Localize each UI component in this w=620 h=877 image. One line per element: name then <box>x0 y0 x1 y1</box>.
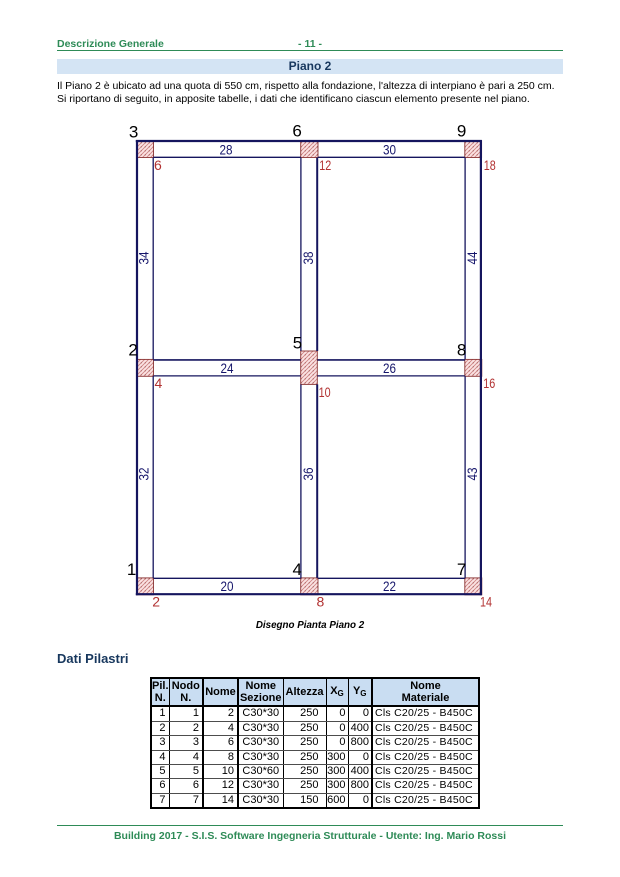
svg-text:38: 38 <box>300 251 316 264</box>
svg-text:18: 18 <box>484 157 496 173</box>
svg-text:26: 26 <box>383 360 396 376</box>
svg-text:7: 7 <box>457 560 466 579</box>
svg-text:30: 30 <box>383 141 396 157</box>
svg-text:22: 22 <box>383 578 396 594</box>
svg-text:44: 44 <box>464 251 480 264</box>
svg-text:36: 36 <box>300 467 316 480</box>
svg-text:8: 8 <box>457 341 466 360</box>
svg-text:24: 24 <box>221 360 234 376</box>
svg-text:20: 20 <box>221 578 234 594</box>
svg-text:32: 32 <box>136 467 152 480</box>
svg-text:34: 34 <box>136 251 152 264</box>
svg-text:10: 10 <box>319 384 331 400</box>
svg-text:4: 4 <box>293 560 302 579</box>
svg-text:4: 4 <box>155 375 163 391</box>
svg-text:3: 3 <box>129 123 138 142</box>
svg-text:14: 14 <box>480 594 492 610</box>
svg-text:43: 43 <box>464 467 480 480</box>
svg-text:5: 5 <box>293 334 302 353</box>
svg-text:16: 16 <box>483 375 495 391</box>
svg-text:12: 12 <box>319 157 331 173</box>
svg-text:2: 2 <box>152 594 160 610</box>
svg-text:8: 8 <box>317 594 325 610</box>
svg-text:1: 1 <box>127 560 136 579</box>
svg-text:9: 9 <box>457 122 466 141</box>
svg-text:6: 6 <box>292 122 301 141</box>
svg-text:28: 28 <box>220 141 233 157</box>
svg-text:2: 2 <box>128 341 137 360</box>
svg-text:6: 6 <box>154 157 162 173</box>
